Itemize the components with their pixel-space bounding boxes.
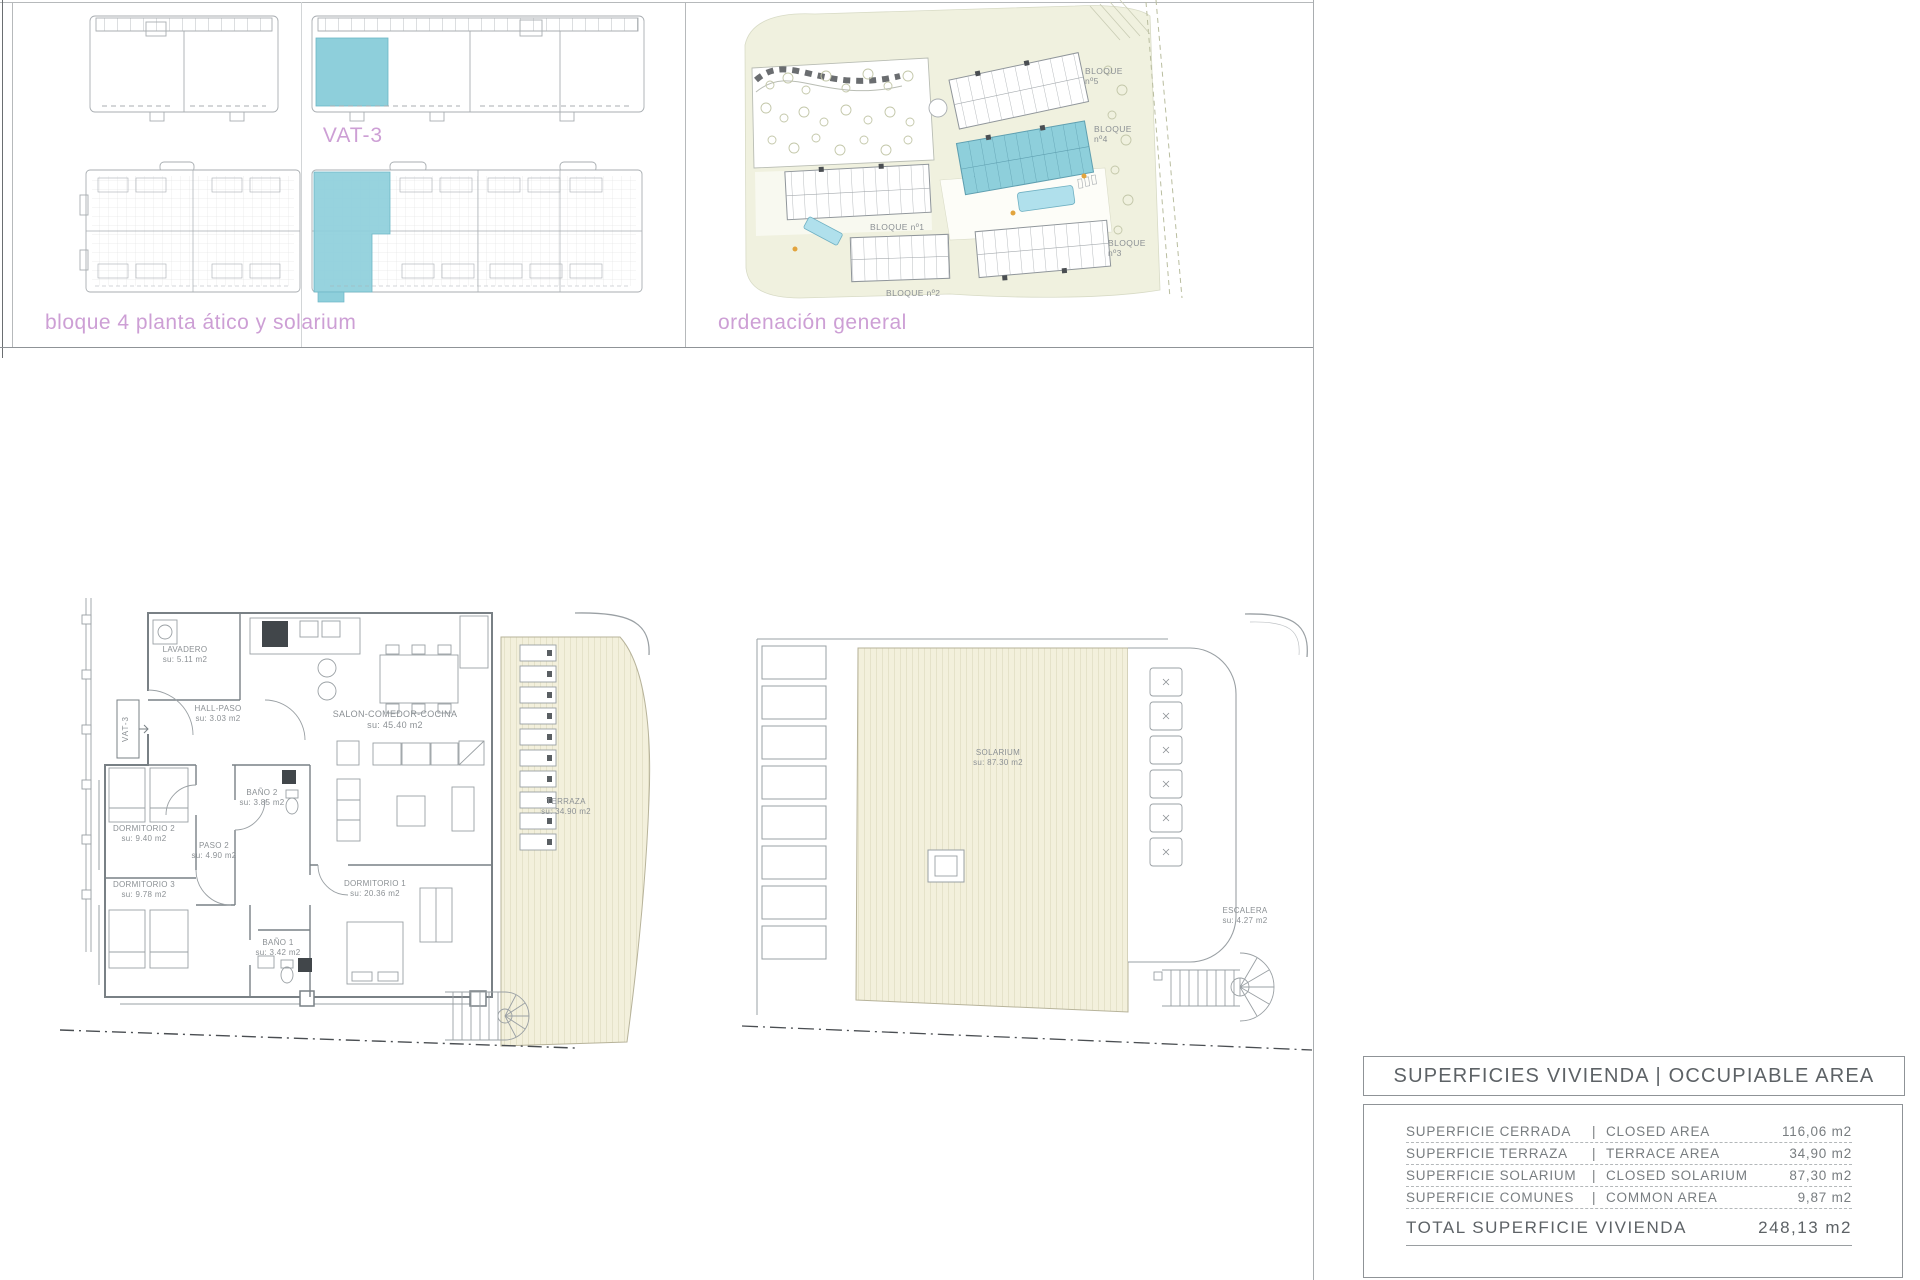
unit-tag-keyplan: VAT-3	[314, 124, 392, 148]
table-row: SUPERFICIE COMUNES | COMMON AREA 9,87 m2	[1406, 1187, 1852, 1209]
row-separator: |	[1592, 1190, 1606, 1205]
site-plan-drawing	[690, 0, 1310, 310]
row-value: 87,30 m2	[1789, 1168, 1852, 1183]
caption-ordenacion: ordenación general	[718, 311, 907, 335]
room-label-paso2: PASO 2su: 4.90 m2	[188, 841, 240, 861]
sheet-left-edge	[2, 0, 3, 358]
room-label-bano2: BAÑO 2su: 3.85 m2	[236, 788, 288, 808]
site-label-bloque1: BLOQUE nº1	[870, 222, 924, 232]
room-label-solarium: SOLARIUMsu: 87.30 m2	[958, 748, 1038, 768]
room-label-dorm2: DORMITORIO 2su: 9.40 m2	[108, 824, 180, 844]
row-label-es: SUPERFICIE COMUNES	[1406, 1190, 1592, 1205]
table-total-row: TOTAL SUPERFICIE VIVIENDA 248,13 m2	[1406, 1218, 1852, 1246]
area-table-title: SUPERFICIES VIVIENDA | OCCUPIABLE AREA	[1363, 1056, 1905, 1096]
room-label-lavadero: LAVADEROsu: 5.11 m2	[150, 645, 220, 665]
total-label: TOTAL SUPERFICIE VIVIENDA	[1406, 1218, 1758, 1238]
caption-row-bottom-border	[0, 347, 1313, 348]
site-label-bloque4: BLOQUEnº4	[1094, 124, 1132, 144]
table-row: SUPERFICIE SOLARIUM | CLOSED SOLARIUM 87…	[1406, 1165, 1852, 1187]
room-label-dorm3: DORMITORIO 3su: 9.78 m2	[108, 880, 180, 900]
table-row: SUPERFICIE CERRADA | CLOSED AREA 116,06 …	[1406, 1121, 1852, 1143]
row-value: 34,90 m2	[1789, 1146, 1852, 1161]
bloque4-keyplan-drawing	[30, 0, 690, 310]
room-label-salon: SALON-COMEDOR-COCINAsu: 45.40 m2	[330, 709, 460, 731]
room-label-hall: HALL-PASOsu: 3.03 m2	[178, 704, 258, 724]
panel-left-inner-border	[12, 2, 13, 348]
row-label-en: TERRACE AREA	[1606, 1146, 1789, 1161]
solarium-plan-drawing	[740, 600, 1320, 1070]
row-separator: |	[1592, 1168, 1606, 1183]
room-label-escalera: ESCALERAsu: 4.27 m2	[1210, 906, 1280, 926]
row-separator: |	[1592, 1146, 1606, 1161]
site-label-bloque5: BLOQUEnº5	[1085, 66, 1123, 86]
room-label-bano1: BAÑO 1su: 3.42 m2	[252, 938, 304, 958]
site-label-bloque3: BLOQUEnº3	[1108, 238, 1146, 258]
row-label-en: CLOSED SOLARIUM	[1606, 1168, 1789, 1183]
room-label-terraza: TERRAZAsu: 34.90 m2	[535, 797, 597, 817]
total-value: 248,13 m2	[1758, 1218, 1852, 1238]
row-separator: |	[1592, 1124, 1606, 1139]
plan-sheet: VAT-3 bloque 4 planta ático y solarium	[0, 0, 1920, 1280]
caption-bloque4: bloque 4 planta ático y solarium	[45, 311, 356, 335]
row-label-es: SUPERFICIE TERRAZA	[1406, 1146, 1592, 1161]
row-label-es: SUPERFICIE SOLARIUM	[1406, 1168, 1592, 1183]
row-value: 116,06 m2	[1782, 1124, 1852, 1139]
row-label-en: CLOSED AREA	[1606, 1124, 1782, 1139]
area-table: SUPERFICIE CERRADA | CLOSED AREA 116,06 …	[1363, 1104, 1903, 1278]
row-value: 9,87 m2	[1798, 1190, 1852, 1205]
row-label-en: COMMON AREA	[1606, 1190, 1798, 1205]
site-label-bloque2: BLOQUE nº2	[886, 288, 940, 298]
atico-floor-plan-drawing	[55, 480, 705, 1080]
room-label-dorm1: DORMITORIO 1su: 20.36 m2	[335, 879, 415, 899]
table-row: SUPERFICIE TERRAZA | TERRACE AREA 34,90 …	[1406, 1143, 1852, 1165]
unit-tag-entrance: VAT-3	[121, 698, 130, 760]
row-label-es: SUPERFICIE CERRADA	[1406, 1124, 1592, 1139]
